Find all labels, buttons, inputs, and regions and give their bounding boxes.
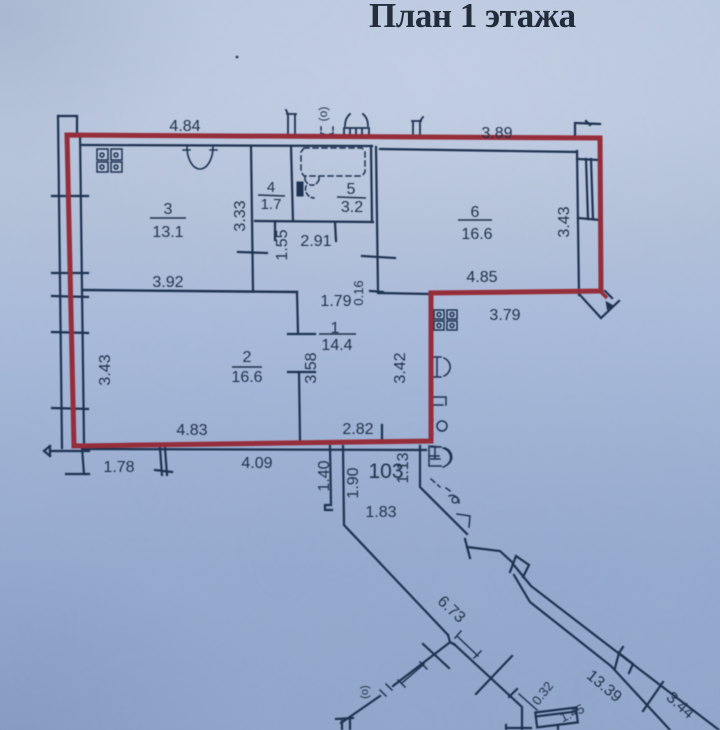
svg-text:16.6: 16.6 <box>231 369 262 386</box>
svg-text:1.83: 1.83 <box>365 504 396 521</box>
svg-text:4.09: 4.09 <box>241 455 272 472</box>
svg-text:3.43: 3.43 <box>97 354 114 385</box>
svg-text:6: 6 <box>471 204 480 221</box>
svg-text:3.92: 3.92 <box>152 274 183 291</box>
svg-text:3.89: 3.89 <box>481 125 512 142</box>
svg-text:3.43: 3.43 <box>556 206 573 237</box>
svg-text:1.90: 1.90 <box>345 467 362 498</box>
svg-text:14.4: 14.4 <box>321 337 352 354</box>
svg-text:3.33: 3.33 <box>232 200 249 231</box>
svg-text:2.91: 2.91 <box>300 233 331 250</box>
svg-text:1.13: 1.13 <box>395 452 412 483</box>
svg-text:2.82: 2.82 <box>342 421 373 438</box>
svg-text:4: 4 <box>267 179 275 196</box>
svg-text:16.6: 16.6 <box>461 226 492 243</box>
svg-text:13.1: 13.1 <box>152 224 183 241</box>
svg-text:3: 3 <box>164 201 173 218</box>
svg-text:4.84: 4.84 <box>169 118 200 135</box>
svg-text:3.79: 3.79 <box>489 307 520 324</box>
svg-text:1.78: 1.78 <box>103 459 134 476</box>
svg-text:5: 5 <box>347 181 356 198</box>
svg-text:1.55: 1.55 <box>274 229 291 260</box>
svg-text:3.42: 3.42 <box>392 352 409 383</box>
svg-text:2: 2 <box>243 349 252 366</box>
svg-text:1.7: 1.7 <box>261 196 282 213</box>
svg-text:0.16: 0.16 <box>351 280 366 305</box>
svg-text:4.83: 4.83 <box>176 422 207 439</box>
svg-text:1.79: 1.79 <box>320 293 351 310</box>
svg-text:3.58: 3.58 <box>303 352 320 383</box>
svg-text:(о): (о) <box>316 107 330 122</box>
svg-text:(о): (о) <box>359 685 371 698</box>
svg-text:4.85: 4.85 <box>466 269 497 286</box>
svg-text:3.2: 3.2 <box>341 199 363 216</box>
svg-text:1.40: 1.40 <box>316 460 333 491</box>
